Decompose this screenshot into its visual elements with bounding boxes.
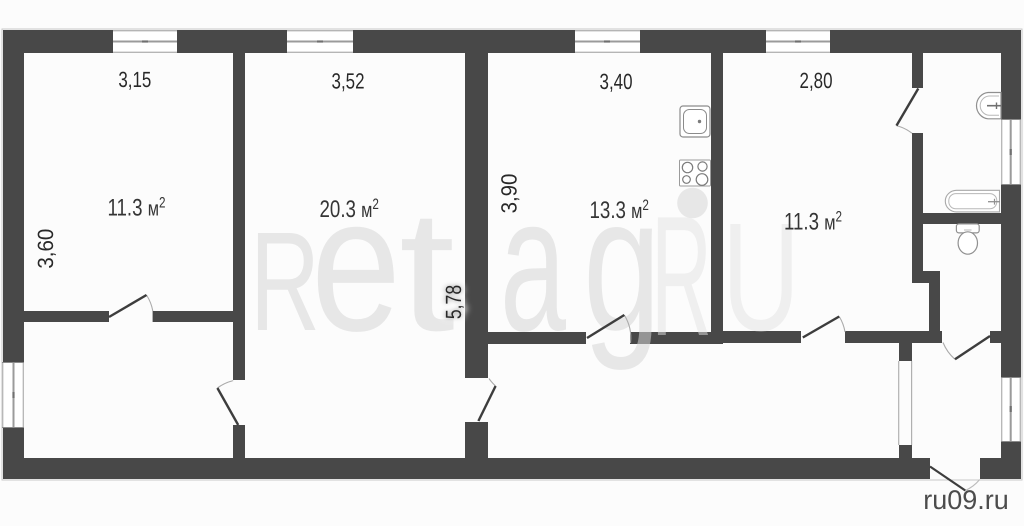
svg-text:11.3 м2: 11.3 м2	[784, 209, 842, 236]
svg-text:11.3 м2: 11.3 м2	[108, 195, 166, 222]
svg-text:3,60: 3,60	[33, 229, 58, 269]
svg-text:ru09.ru: ru09.ru	[923, 485, 1009, 515]
svg-text:3,15: 3,15	[118, 67, 151, 92]
svg-text:3,90: 3,90	[497, 174, 522, 214]
svg-text:e: e	[311, 156, 401, 371]
svg-text:3,52: 3,52	[332, 69, 365, 94]
svg-text:20.3 м2: 20.3 м2	[320, 196, 379, 223]
svg-text:2,80: 2,80	[800, 68, 833, 93]
svg-text:R: R	[250, 202, 320, 360]
svg-text:g: g	[583, 156, 661, 371]
svg-text:3,40: 3,40	[600, 69, 633, 94]
svg-text:13.3 м2: 13.3 м2	[590, 197, 649, 224]
svg-text:R: R	[651, 181, 712, 372]
svg-text:5,78: 5,78	[441, 285, 466, 319]
svg-text:t: t	[399, 175, 455, 367]
